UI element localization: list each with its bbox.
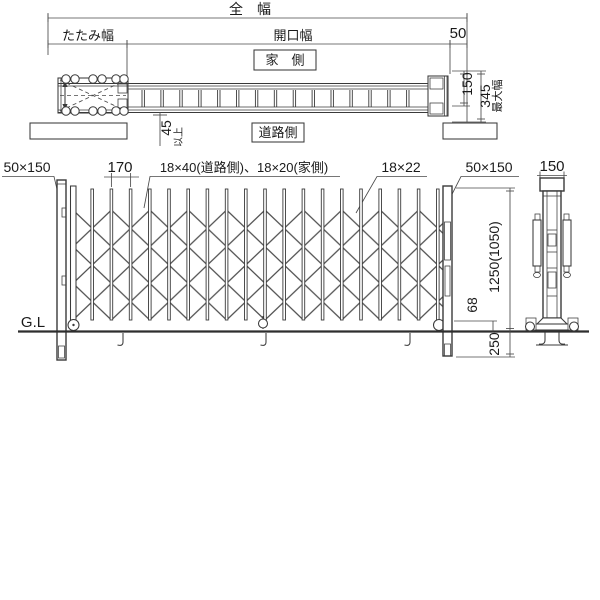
gate-bar [245,189,248,320]
dim-caster-label: 68 [464,297,480,313]
house-side-label: 家 側 [265,53,304,68]
gate-bar [283,189,286,320]
dim-side-width: 150 [537,158,567,180]
gate-bar [360,189,363,320]
gate-bar [206,189,209,320]
fold-caster-wheel [120,107,128,115]
drop-bolt-hook [118,333,124,345]
road-side-box: 道路側 [252,123,304,142]
fold-corner-block [118,84,127,93]
gate-bar [264,189,267,320]
dim-plan-right: 150 345 最大幅 [452,71,504,122]
dim-post-offset-label: 50 [450,25,467,42]
fold-caster-wheel [62,107,70,115]
road-side-label: 道路側 [258,125,297,140]
gate-bar [321,189,324,320]
fold-caster-wheel [71,75,79,83]
dim-opening-width-label: 開口幅 [273,28,312,43]
plan-bar-ticks [142,90,409,107]
fold-caster-wheel [98,107,106,115]
gate-bar [129,189,132,320]
house-side-box: 家 側 [254,50,316,70]
callout-bar-size: 18×40(道路側)、18×20(家側) [144,160,340,208]
gate-bar [187,189,190,320]
dim-row-2: たたみ幅 開口幅 50 [48,25,467,48]
top-view: 全 幅 たたみ幅 開口幅 50 家 側 [30,1,504,147]
dim-embed-label: 250 [486,332,502,356]
fold-caster-wheel [98,75,106,83]
dim-total-width: 全 幅 [48,1,467,22]
gate-bar [437,189,440,320]
side-view: 150 [526,158,579,345]
fold-caster-wheel [62,75,70,83]
clearance-value: 45 [158,120,174,136]
drop-bolt-hook [261,333,267,345]
gate-technical-drawing: 全 幅 たたみ幅 開口幅 50 家 側 [0,0,600,600]
side-width-label: 150 [539,158,564,175]
gate-bar [110,189,113,320]
max-width-caption: 最大幅 [490,80,504,113]
dim-rail-width-label: 150 [459,72,475,96]
fold-caster-wheel [71,107,79,115]
dim-clearance: 45 以上 [153,112,185,147]
gate-bar [379,189,382,320]
dim-fold-width-label: たたみ幅 [62,28,114,43]
gate-bar [91,189,94,320]
gate-bar [341,189,344,320]
fold-caster-wheel [89,107,97,115]
callout-post-left: 50×150 [2,159,61,206]
gate-bar [168,189,171,320]
gate-bar [398,189,401,320]
wall-left [30,123,127,139]
wall-right [443,123,497,139]
plan-end-assembly [428,76,448,116]
dim-height-label: 1250(1050) [486,221,502,293]
side-base [526,318,579,331]
fold-caster-wheel [112,75,120,83]
fold-caster-wheel [120,75,128,83]
post-left-size-label: 50×150 [3,159,50,175]
dim-max-width-label: 345 [477,84,493,108]
gate-bar [417,189,420,320]
dim-pitch-label: 170 [107,159,132,176]
gate-bar [302,189,305,320]
drop-bolt-hook [405,333,411,345]
dim-total-width-label: 全 幅 [229,1,271,17]
side-post [540,178,564,318]
drawing-sheet: 全 幅 たたみ幅 開口幅 50 家 側 [0,0,600,600]
fold-caster-wheel [89,75,97,83]
bar-size-label: 18×40(道路側)、18×20(家側) [160,160,328,175]
elevation-view: 50×150 170 18×40(道路側)、18×20(家側) 18×22 50… [2,159,589,360]
brace-size-label: 18×22 [381,159,421,175]
scissor-lattice [73,210,444,320]
clearance-suffix: 以上 [173,127,185,147]
gate-bar [149,189,152,320]
dim-bar-pitch: 170 [104,159,139,187]
callout-post-right: 50×150 [446,159,519,206]
post-right-size-label: 50×150 [465,159,512,175]
side-anchor [536,332,568,345]
fold-caster-wheel [112,107,120,115]
left-post [57,180,66,360]
ground-label: G.L [21,314,45,331]
gate-bar [225,189,228,320]
callout-brace-size: 18×22 [356,159,427,213]
